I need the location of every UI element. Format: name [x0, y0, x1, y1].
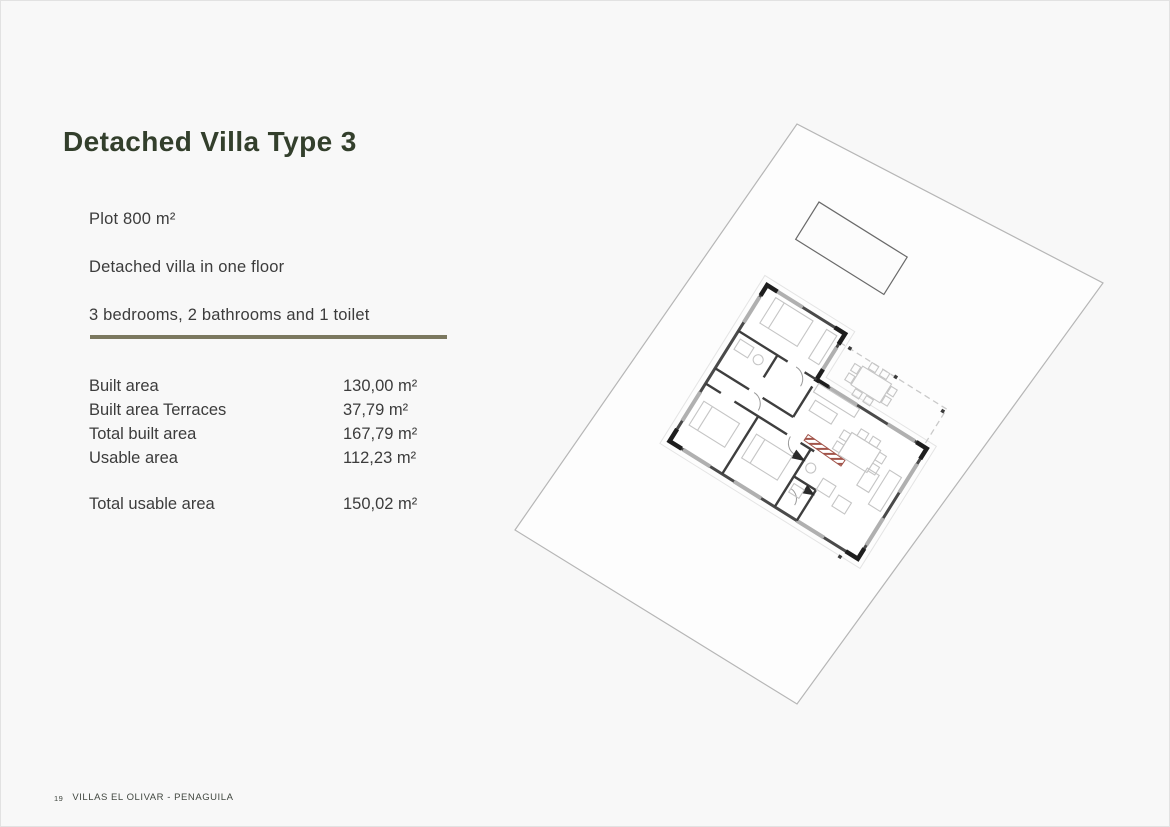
separator-line	[90, 335, 447, 339]
intro-floors: Detached villa in one floor	[89, 258, 284, 277]
page-title: Detached Villa Type 3	[63, 126, 357, 158]
spec-row: Total built area 167,79 m²	[89, 425, 449, 444]
intro-rooms: 3 bedrooms, 2 bathrooms and 1 toilet	[89, 306, 370, 325]
intro-plot: Plot 800 m²	[89, 210, 176, 229]
spec-label: Total usable area	[89, 495, 215, 513]
spec-label: Built area	[89, 377, 159, 395]
spec-value: 150,02 m²	[343, 495, 417, 514]
footer-page-number: 19	[54, 791, 63, 803]
spec-value: 112,23 m²	[343, 449, 416, 468]
spec-label: Usable area	[89, 449, 178, 467]
footer: 19 VILLAS EL OLIVAR - PENAGUILA	[54, 791, 233, 803]
footer-project-name: VILLAS EL OLIVAR - PENAGUILA	[72, 791, 233, 803]
spec-value: 130,00 m²	[343, 377, 417, 396]
spec-row: Usable area 112,23 m²	[89, 449, 449, 468]
spec-label: Built area Terraces	[89, 401, 226, 419]
spec-row-total: Total usable area 150,02 m²	[89, 495, 449, 514]
brochure-page: Detached Villa Type 3 Plot 800 m² Detach…	[0, 0, 1170, 827]
spec-row: Built area Terraces 37,79 m²	[89, 401, 449, 420]
spec-value: 37,79 m²	[343, 401, 408, 420]
spec-row: Built area 130,00 m²	[89, 377, 449, 396]
spec-value: 167,79 m²	[343, 425, 417, 444]
spec-label: Total built area	[89, 425, 196, 443]
